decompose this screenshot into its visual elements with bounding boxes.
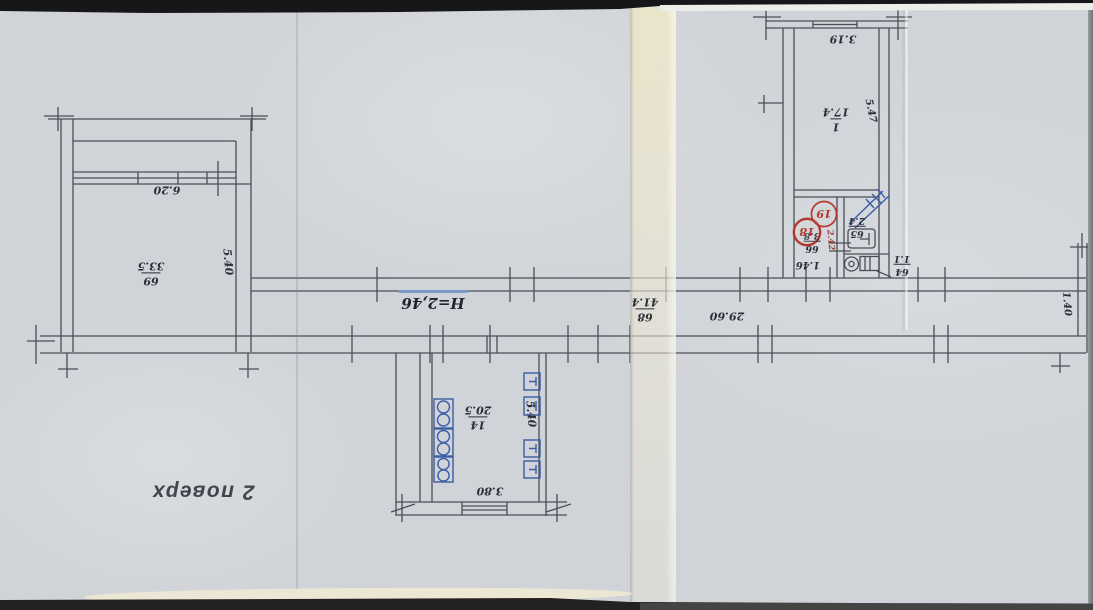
stove-symbols: [434, 399, 453, 482]
floor-plan-drawing: [0, 0, 1093, 610]
ceiling-height-note: H=2,46: [398, 290, 467, 310]
dim-corridor-length: 29.60: [710, 311, 744, 322]
dim-left-room-window: 6.20: [154, 185, 181, 196]
scanned-floor-plan-page: 2 поверх H=2,46 6933.5 6841.4 1420.5 117…: [0, 0, 1093, 610]
dim-corridor-end-width: 1.40: [1060, 291, 1072, 316]
paper-crease-right: [905, 0, 908, 330]
paper-crease-left: [296, 0, 298, 600]
scan-bottom-edge: [0, 594, 1093, 610]
dim-kitchen-window: 3.80: [477, 486, 504, 497]
walls: [27, 10, 1093, 522]
paper-right-edge: [1088, 0, 1093, 610]
room-69-label: 6933.5: [138, 260, 165, 287]
dim-door-width: 1.46: [796, 259, 820, 269]
room-1-label: 117.4: [823, 106, 850, 133]
scan-top-edge: [0, 0, 1093, 16]
room-68-label: 6841.4: [632, 296, 659, 323]
dim-left-room-depth: 5.40: [221, 248, 234, 276]
red-circle-19: 19: [812, 202, 836, 226]
room-64-label: 641.1: [893, 252, 910, 276]
floor-title: 2 поверх: [152, 482, 255, 503]
dim-bath-depth: 2.42: [825, 229, 835, 250]
dim-room1-width: 3.19: [830, 34, 857, 45]
room-65-label: 652.4: [848, 214, 865, 238]
dim-kitchen-depth: 5.40: [524, 400, 537, 428]
room-14-label: 1420.5: [465, 404, 492, 431]
